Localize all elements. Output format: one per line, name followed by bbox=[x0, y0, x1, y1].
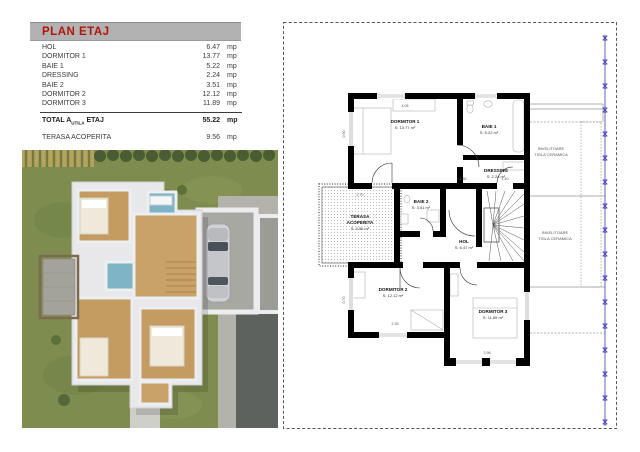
label-baie2: BAIE 2 bbox=[414, 199, 429, 204]
dim-2: 1.30 bbox=[460, 177, 467, 181]
unit-label: mp bbox=[220, 134, 240, 141]
room-area-value: 2.24 bbox=[186, 71, 220, 80]
table-divider bbox=[40, 112, 242, 113]
room-label: DORMITOR 3 bbox=[42, 99, 186, 108]
room-label: BAIE 2 bbox=[42, 81, 186, 90]
render-3d-aerial-view bbox=[22, 150, 278, 428]
room-area-value: 5.22 bbox=[186, 62, 220, 71]
area-baie1: S: 5.22 m² bbox=[480, 130, 499, 135]
table-row: DORMITOR 2 12.12 mp bbox=[42, 90, 240, 99]
table-row: DRESSING 2.24 mp bbox=[42, 71, 240, 80]
label-terasa: TERASA bbox=[351, 214, 371, 219]
roof-label-2b: TIGLA CERAMICA bbox=[538, 236, 572, 241]
terrace-label: TERASA ACOPERITA bbox=[42, 134, 186, 141]
room-label: BAIE 1 bbox=[42, 62, 186, 71]
car bbox=[206, 224, 230, 302]
area-baie2: S: 3.51 m² bbox=[412, 205, 431, 210]
unit-label: mp bbox=[220, 81, 240, 90]
roof-label-1b: TIGLA CERAMICA bbox=[534, 152, 568, 157]
dim-1: 4.05 bbox=[402, 104, 409, 108]
title-bar: PLAN ETAJ bbox=[30, 22, 241, 41]
dim-8: 0.70 bbox=[342, 297, 346, 304]
vineyard bbox=[22, 150, 94, 167]
dim-3: 1.40 bbox=[502, 177, 509, 181]
label-baie1: BAIE 1 bbox=[482, 124, 497, 129]
room-label: DRESSING bbox=[42, 71, 186, 80]
label-dormitor3: DORMITOR 3 bbox=[479, 309, 508, 314]
table-row: BAIE 1 5.22 mp bbox=[42, 62, 240, 71]
page-title: PLAN ETAJ bbox=[42, 26, 110, 38]
total-row: TOTAL AUTILA ETAJ 55.22 mp bbox=[42, 117, 240, 125]
unit-label: mp bbox=[220, 99, 240, 108]
area-terasa: S: 9.56 m² bbox=[351, 226, 370, 231]
room-area-value: 6.47 bbox=[186, 43, 220, 52]
bed-dormitor2 bbox=[80, 338, 108, 376]
table-row: BAIE 2 3.51 mp bbox=[42, 81, 240, 90]
dim-6: 2.98 bbox=[484, 351, 491, 355]
total-label: TOTAL AUTILA ETAJ bbox=[42, 117, 186, 125]
terrace-deck bbox=[40, 256, 78, 318]
unit-label: mp bbox=[220, 62, 240, 71]
area-table: HOL 6.47 mp DORMITOR 1 13.77 mp BAIE 1 5… bbox=[42, 43, 240, 109]
room-label: DORMITOR 1 bbox=[42, 52, 186, 61]
floor-plan-drawing: INVELITOARE TIGLA CERAMICA INVELITOARE T… bbox=[283, 22, 617, 430]
unit-label: mp bbox=[220, 117, 240, 125]
label-dormitor2: DORMITOR 2 bbox=[379, 287, 408, 292]
area-dormitor2: S: 12.12 m² bbox=[383, 293, 404, 298]
plan-etaj-sheet: PLAN ETAJ HOL 6.47 mp DORMITOR 1 13.77 m… bbox=[0, 0, 640, 452]
total-value: 55.22 bbox=[186, 117, 220, 125]
roof-label-1: INVELITOARE bbox=[538, 146, 565, 151]
dim-7: 0.90 bbox=[342, 131, 346, 138]
bathtub bbox=[150, 196, 172, 205]
room-label: HOL bbox=[42, 43, 186, 52]
terrace-value: 9.56 bbox=[186, 134, 220, 141]
room-area-value: 11.89 bbox=[186, 99, 220, 108]
roof-label-2: INVELITOARE bbox=[542, 230, 569, 235]
room-baie2 bbox=[106, 262, 134, 290]
unit-label: mp bbox=[220, 71, 240, 80]
table-row: DORMITOR 3 11.89 mp bbox=[42, 99, 240, 108]
table-row: DORMITOR 1 13.77 mp bbox=[42, 52, 240, 61]
room-hol bbox=[134, 214, 198, 298]
unit-label: mp bbox=[220, 43, 240, 52]
dim-5: 2.35 bbox=[392, 322, 399, 326]
area-dormitor3: S: 11.89 m² bbox=[483, 315, 504, 320]
area-dormitor1: S: 13.77 m² bbox=[395, 125, 416, 130]
unit-label: mp bbox=[220, 52, 240, 61]
terrace-row: TERASA ACOPERITA 9.56 mp bbox=[42, 134, 240, 141]
room-label: DORMITOR 2 bbox=[42, 90, 186, 99]
house bbox=[72, 182, 208, 415]
room-area-value: 13.77 bbox=[186, 52, 220, 61]
unit-label: mp bbox=[220, 90, 240, 99]
label-hol: HOL bbox=[459, 239, 469, 244]
room-area-value: 12.12 bbox=[186, 90, 220, 99]
label-terasa2: ACOPERITA bbox=[347, 220, 374, 225]
table-row: HOL 6.47 mp bbox=[42, 43, 240, 52]
label-dormitor1: DORMITOR 1 bbox=[391, 119, 420, 124]
label-dressing: DRESSING bbox=[484, 168, 508, 173]
area-hol: S: 6.47 m² bbox=[455, 245, 474, 250]
dim-4: 2.70 bbox=[357, 193, 364, 197]
room-area-value: 3.51 bbox=[186, 81, 220, 90]
